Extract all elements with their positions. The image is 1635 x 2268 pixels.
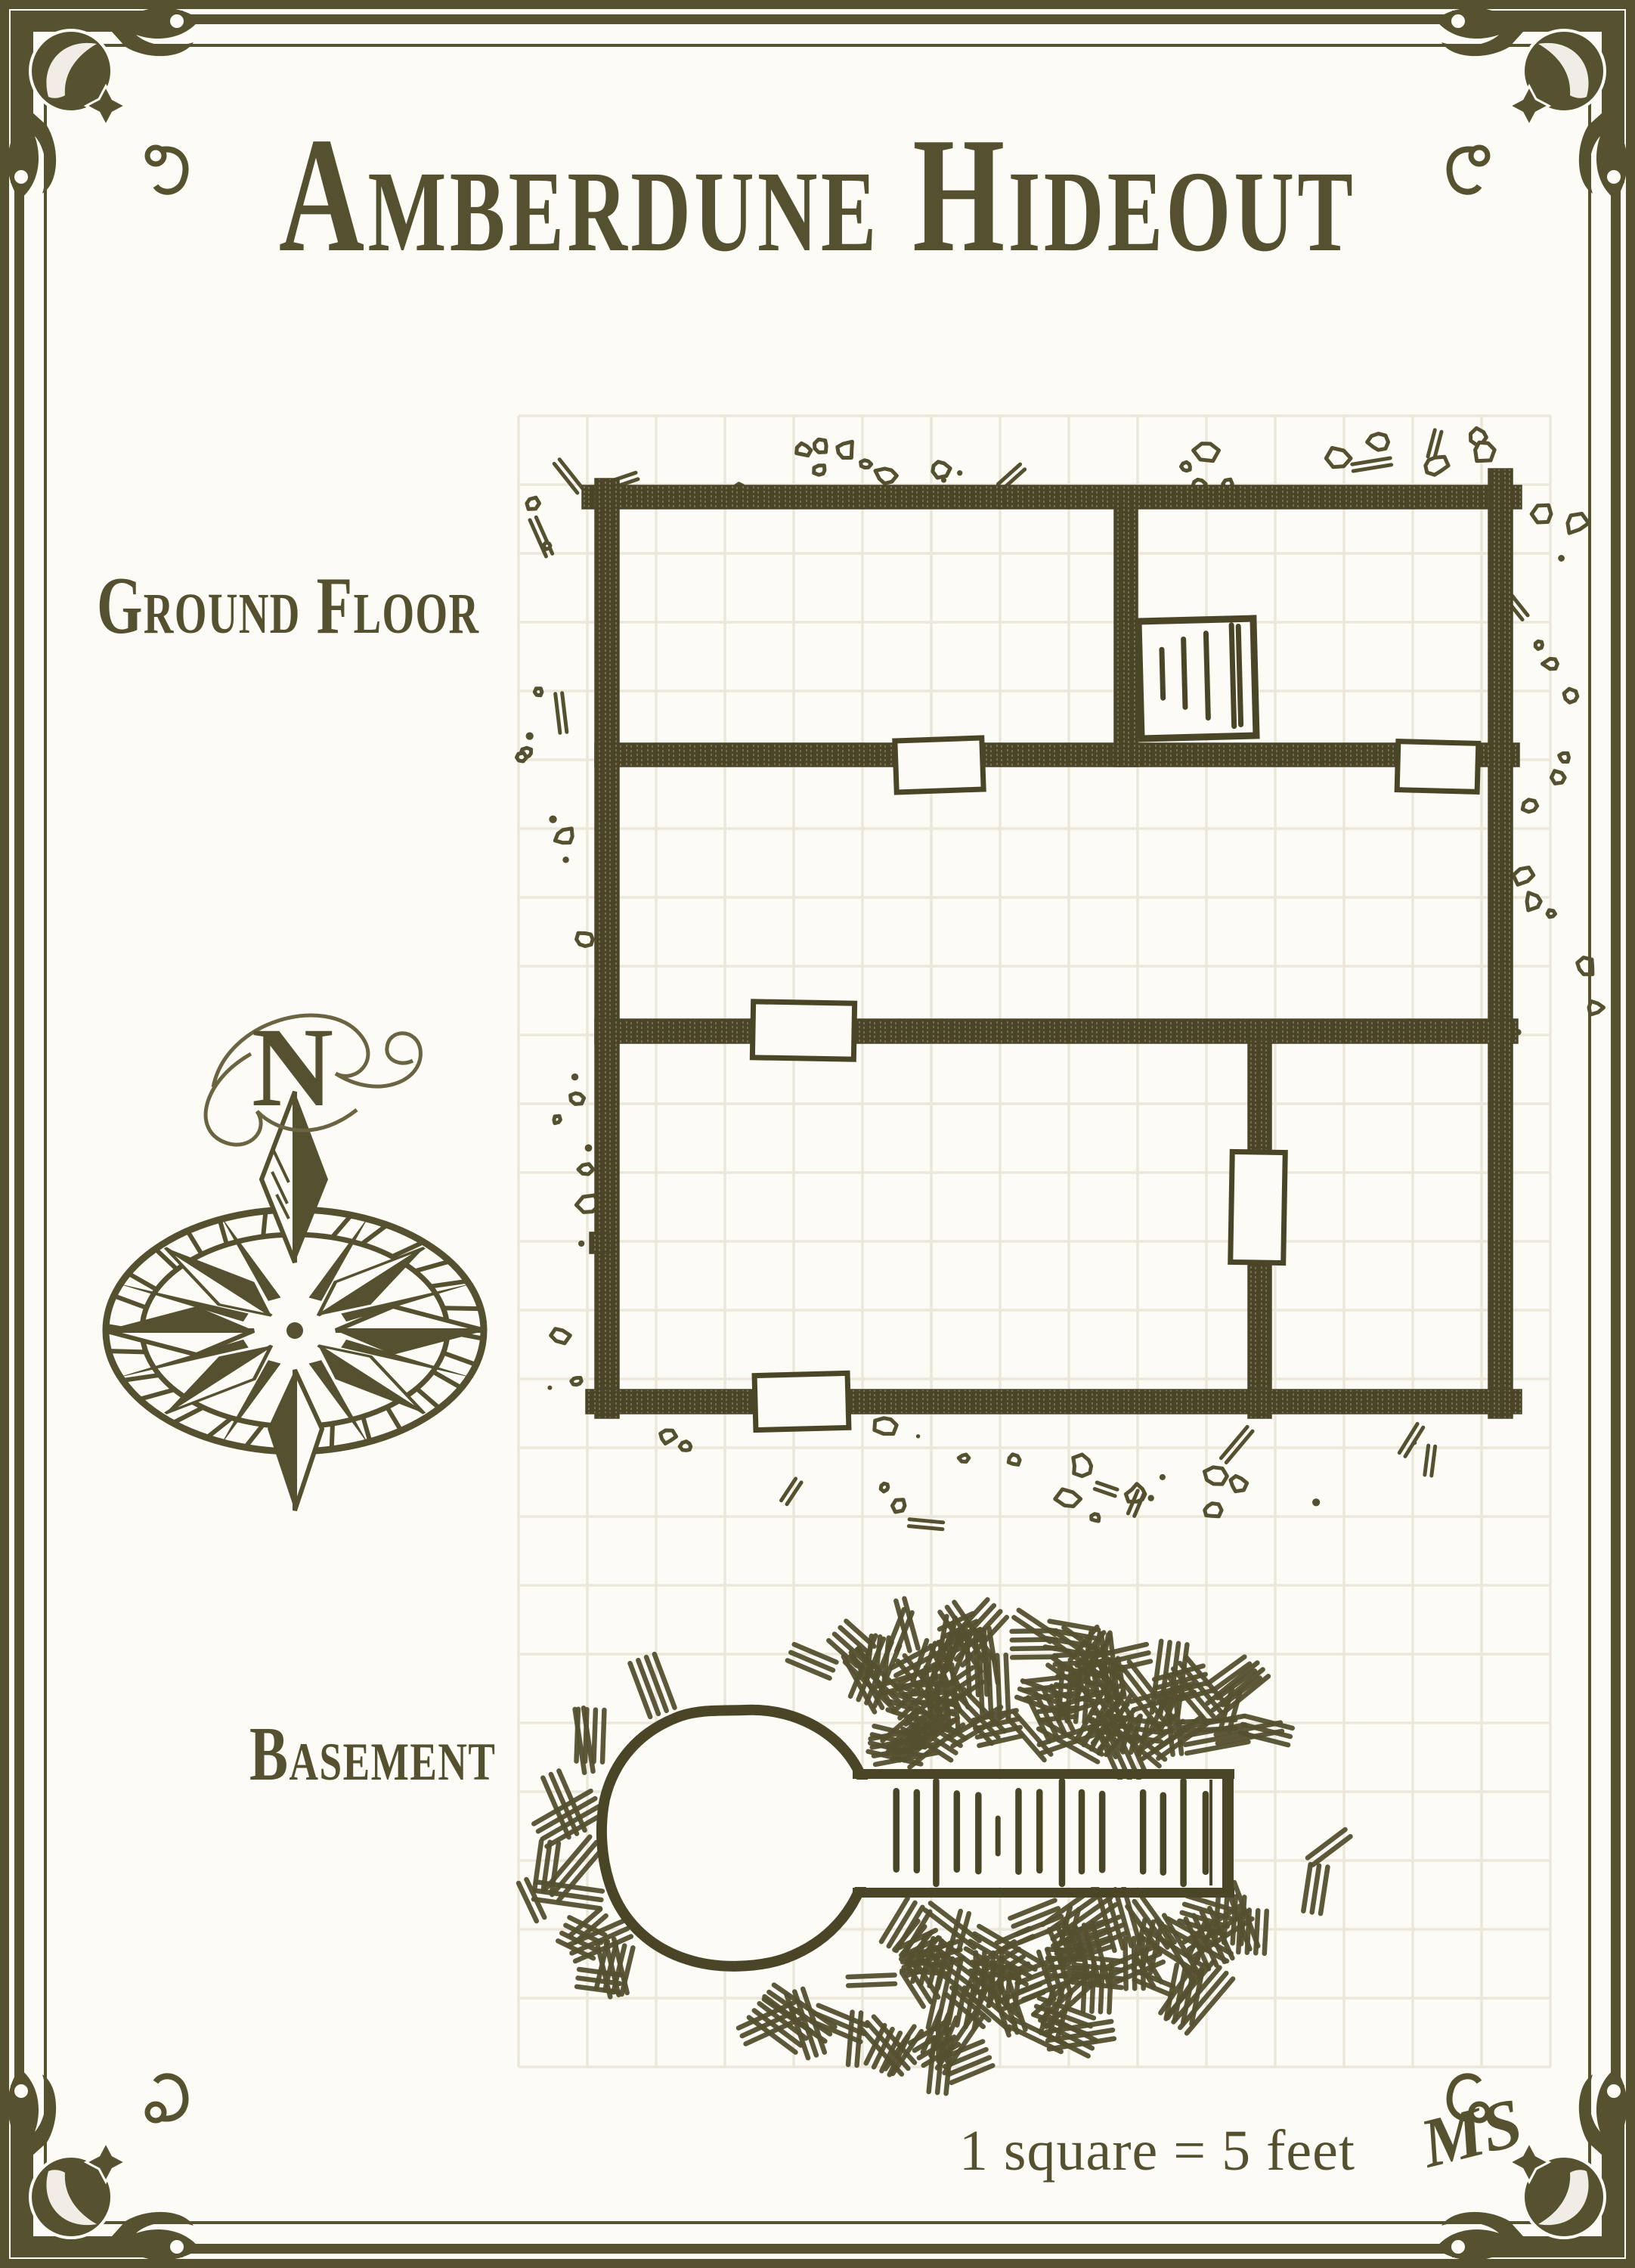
crate bbox=[1138, 618, 1256, 739]
door bbox=[752, 1002, 854, 1059]
rock-debris bbox=[517, 428, 1604, 1529]
map-page: N bbox=[0, 0, 1635, 2268]
basement-label: Basement bbox=[249, 1716, 496, 1793]
basement-plan bbox=[519, 1599, 1350, 2094]
ground-floor-plan bbox=[582, 469, 1522, 1430]
basement-stair-corridor bbox=[843, 1769, 1234, 1898]
door bbox=[895, 738, 983, 792]
map-artwork: N bbox=[0, 0, 1635, 2268]
walls bbox=[582, 469, 1522, 1418]
compass-north-label: N bbox=[252, 1005, 333, 1130]
door bbox=[1231, 1151, 1286, 1263]
scale-note: 1 square = 5 feet bbox=[959, 2118, 1355, 2184]
ground-floor-label: Ground Floor bbox=[97, 565, 479, 647]
compass-cardinal-points bbox=[104, 1092, 485, 1510]
page-title: Amberdune Hideout bbox=[229, 113, 1406, 278]
compass-rose: N bbox=[104, 1005, 485, 1510]
door bbox=[754, 1373, 849, 1430]
basement-cave bbox=[602, 1710, 871, 1966]
door bbox=[1397, 742, 1479, 792]
